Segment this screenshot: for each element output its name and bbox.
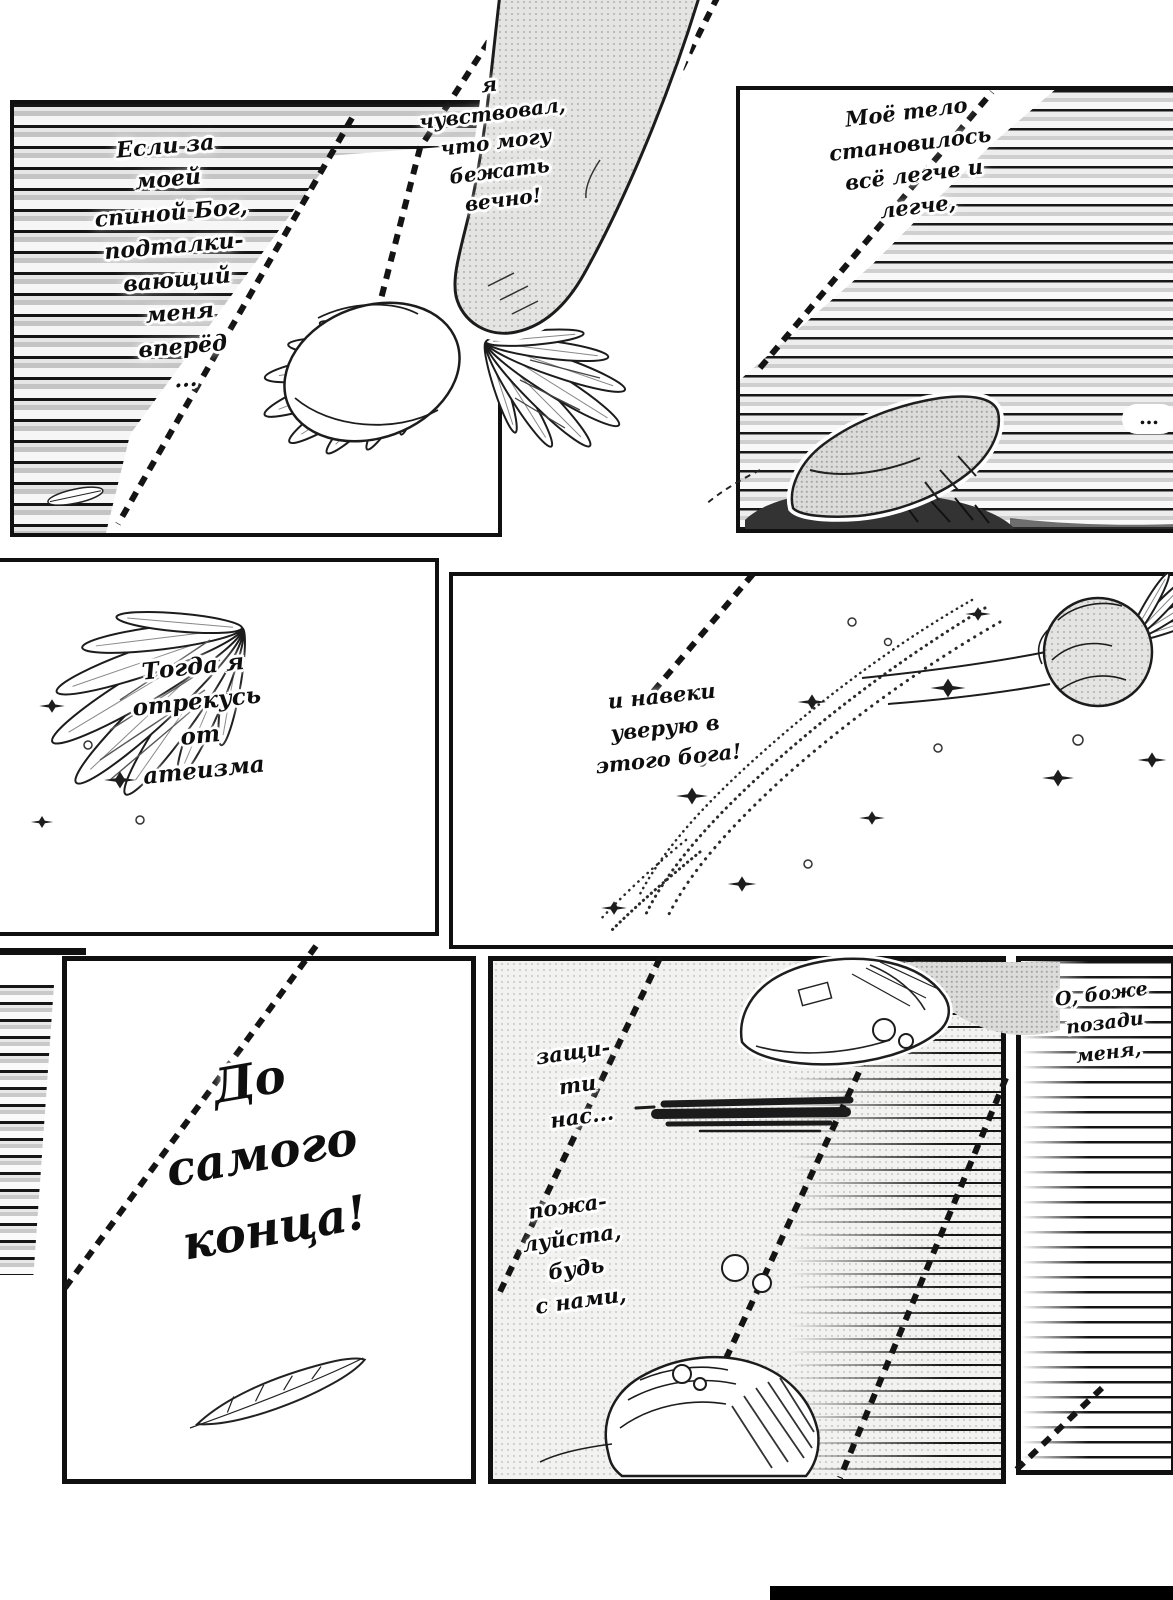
speech-text-renounce-atheism: Тогда я отрекусь от атеизма xyxy=(79,639,317,800)
speech-text-god-behind: О, боже позади меня, xyxy=(1025,971,1173,1077)
left-edge-speedline-strip xyxy=(0,985,54,1275)
page-corner-black-bar xyxy=(770,1586,1173,1600)
speed-lines-background xyxy=(788,961,1001,1479)
ellipsis-bubble: … xyxy=(1122,404,1173,434)
speech-text-run-forever: я чувствовал, что могу бежать вечно! xyxy=(388,58,604,226)
border-stub xyxy=(0,948,86,955)
speech-text-god-behind-me: Если за моей спиной Бог, подталки- вающи… xyxy=(47,120,304,407)
manga-page: Если за моей спиной Бог, подталки- вающи… xyxy=(0,0,1173,1600)
